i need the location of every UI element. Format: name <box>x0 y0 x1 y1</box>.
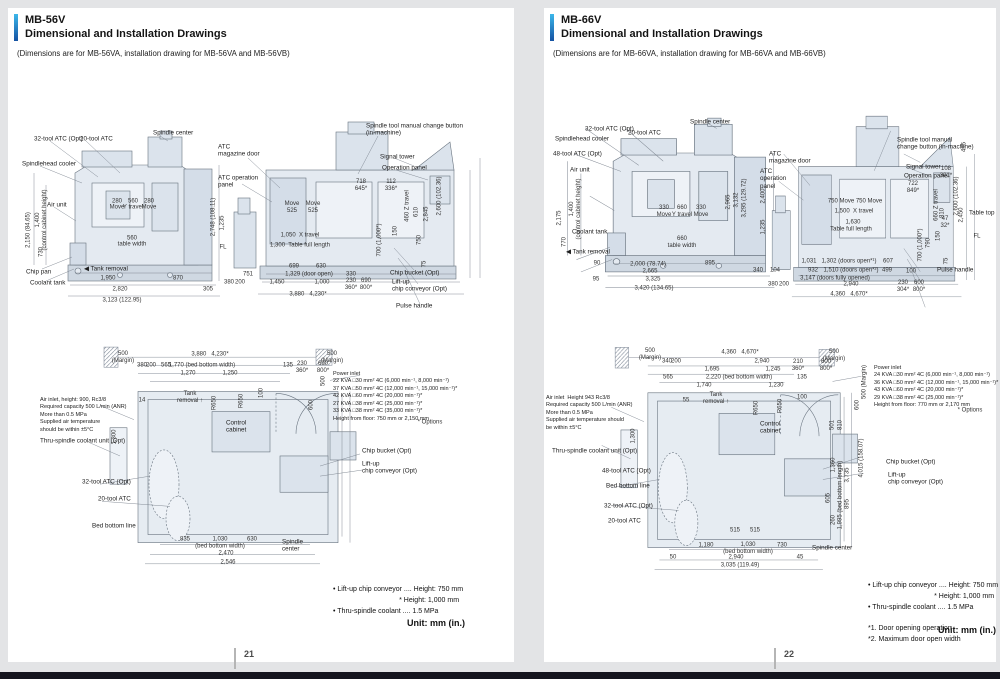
part-label: 48-tool ATC (Opt) <box>602 467 651 474</box>
part-label: Air unit <box>570 166 590 173</box>
dimension-label: 2,220 (bed bottom width) <box>706 374 772 381</box>
dimension-label: 770 <box>561 237 568 247</box>
part-label: 32-tool ATC (Opt) <box>34 135 83 142</box>
dimension-label: 2,470 <box>218 550 233 557</box>
dimension-label: 200 <box>235 279 245 286</box>
footnotes: • Lift-up chip conveyor .... Height: 750… <box>868 581 998 646</box>
dimension-label: 2,965 <box>725 194 732 209</box>
dimension-label: 1,950 <box>100 275 115 282</box>
dimension-label: 600 <box>308 400 315 410</box>
page-title: Dimensional and Installation Drawings <box>25 28 227 42</box>
side-view-drawing: 32-tool ATC (Opt)20-tool ATCSpindle cent… <box>20 125 225 325</box>
dimension-label: 500 (Margin) <box>639 348 661 362</box>
front-view-drawing: ATC magazine doorATC operation panelSpin… <box>759 112 996 322</box>
plan-view-drawing: 500 (Margin)4,360 4,670*3402002,9401,695… <box>544 335 996 593</box>
dimension-label: 500 <box>320 376 327 386</box>
dimension-label: 75 <box>421 261 428 268</box>
dimension-label: 4,360 4,670* <box>721 349 758 356</box>
dimension-label: 460 Z travel <box>404 190 411 222</box>
dimension-label: 750 Move <box>856 198 882 205</box>
dimension-label: 150 <box>392 226 399 236</box>
dimension-label: 230 304* <box>897 280 909 294</box>
dimension-label: 45 <box>797 554 804 561</box>
dimension-label: 495 <box>961 142 968 152</box>
dimension-label: 1,050 X travel <box>281 232 320 239</box>
dimension-label: 2,940 <box>754 358 769 365</box>
dimension-label: 1,329 (door open) <box>285 271 333 278</box>
dimension-label: 47 32* <box>940 216 949 230</box>
dimension-label: R650 <box>238 394 245 408</box>
front-view-drawing: ATC magazine doorATC operation panelSpin… <box>218 118 506 318</box>
part-label: Spindle center <box>282 539 303 554</box>
part-label: Spindlehead cooler <box>22 160 76 167</box>
page-title: Dimensional and Installation Drawings <box>561 28 763 42</box>
dimension-label: 870 <box>173 275 183 282</box>
dimension-label: 1,300 <box>630 428 637 443</box>
side-view-drawing: 32-tool ATC (Opt)20-tool ATCSpindle cent… <box>552 112 780 317</box>
dimension-label: 1,995 (bed bottom length) <box>837 461 844 530</box>
dimension-label: 718 645* <box>355 179 367 193</box>
dimension-label: 1,235 <box>219 215 226 230</box>
dimension-label: 210 360* <box>792 359 804 373</box>
part-label: Spindle center <box>690 118 730 125</box>
part-label: Pulse handle <box>396 302 432 309</box>
dimension-label: 1,510 (doors open*²) <box>823 267 878 274</box>
part-label: Spindlehead cooler <box>555 135 609 142</box>
page-number: 22 <box>774 648 794 669</box>
dimension-label: 305 <box>203 286 213 293</box>
dimension-label: 3,035 (119.49) <box>721 562 760 569</box>
part-label: Chip bucket (Opt) <box>362 447 411 454</box>
dimension-label: 3,325 <box>645 276 660 283</box>
part-label: Bed bottom line <box>92 522 136 529</box>
dimension-label: 1,230 <box>768 382 783 389</box>
part-label: ATC operation panel <box>218 175 258 190</box>
dimension-label: 2,600 (102.36) <box>436 176 443 215</box>
dimension-label: 380 <box>224 279 234 286</box>
dimension-label: FL <box>973 233 980 240</box>
dimension-label: 1,270 <box>180 370 195 377</box>
part-label: Control cabinet <box>760 421 780 436</box>
dimension-label: 4,360 4,670* <box>830 291 867 298</box>
dimension-label: 4,015 (158.07) <box>858 438 865 477</box>
dimension-label: table width <box>118 241 147 248</box>
dimension-label: 14 <box>139 397 146 404</box>
part-label: Thru-spindle coolant unit (Opt) <box>552 447 637 454</box>
subtitle: (Dimensions are for MB-56VA, installatio… <box>17 49 290 58</box>
part-label: Pulse handle <box>937 266 973 273</box>
dimension-label: 610 <box>413 207 420 217</box>
dimension-label: 135 <box>797 374 807 381</box>
dimension-label: 810 <box>837 420 844 430</box>
dimension-label: 515 <box>730 527 740 534</box>
model-name: MB-56V <box>25 14 227 28</box>
dimension-label: FL <box>219 244 226 251</box>
dimension-label: 751 <box>243 271 253 278</box>
dimension-label: Y travel <box>123 204 143 211</box>
part-label: 20-tool ATC <box>98 495 131 502</box>
dimension-label: 630 <box>247 536 257 543</box>
accent-bar <box>550 14 554 41</box>
dimension-label: 135 <box>283 362 293 369</box>
dimension-label: 1,000 <box>314 279 329 286</box>
dimension-label: 515 <box>750 527 760 534</box>
page-mb56v: MB-56V Dimensional and Installation Draw… <box>8 8 514 662</box>
dimension-label: 1,302 (doors open*¹) <box>821 258 876 265</box>
dimension-label: 607 <box>883 258 893 265</box>
dimension-label: 501 <box>829 420 836 430</box>
dimension-label: 3,735 <box>844 467 851 482</box>
dimension-label: 1,300 <box>111 429 118 444</box>
part-label: Spindle center <box>153 129 193 136</box>
dimension-label: 1,740 <box>696 382 711 389</box>
dimension-label: 2,940 <box>728 554 743 561</box>
dimension-label: 1,180 <box>698 542 713 549</box>
dimension-label: 200 <box>779 281 789 288</box>
dimension-label: 75 <box>943 258 950 265</box>
dimension-label: 330 Move <box>657 205 672 219</box>
dimension-label: 2,940 <box>843 281 858 288</box>
part-label: ATC magazine door <box>769 151 811 166</box>
dimension-label: 50 <box>670 554 677 561</box>
part-label: 32-tool ATC (Opt) <box>82 478 131 485</box>
dimension-label: 230 360* <box>345 278 357 292</box>
dimension-label: 605 <box>825 493 832 503</box>
part-label: Coolant tank <box>30 279 65 286</box>
part-label: 20-tool ATC <box>80 135 113 142</box>
dimension-label: * Options <box>958 407 983 414</box>
dimension-label: 500 (Margin) <box>321 351 343 365</box>
dimension-label: 895 <box>844 499 851 509</box>
dimension-label: 2,150 (84.65) <box>25 212 32 248</box>
dimension-label: 330 Move <box>694 205 709 219</box>
dimension-label: 750 Move <box>828 198 854 205</box>
bottom-edge-bar <box>0 672 1000 679</box>
dimension-label: 2,546 <box>220 559 235 566</box>
dimension-label: 1,250 <box>222 370 237 377</box>
page-mb66v: MB-66V Dimensional and Installation Draw… <box>544 8 996 662</box>
dimension-label: 895 <box>705 260 715 267</box>
dimension-label: 1,400 (control cabinet height) <box>569 178 583 239</box>
dimension-label: 200 <box>671 358 681 365</box>
part-label: Operation panel <box>382 164 427 171</box>
dimension-label: 565 <box>663 374 673 381</box>
dimension-label: 660 Y travel <box>672 205 692 219</box>
dimension-label: 3,147 (doors fully opened) <box>800 275 870 282</box>
dimension-label: Tank removal ↑ <box>703 392 729 406</box>
plan-view-drawing: 500 (Margin)3,880 4,230*3802005651,770 (… <box>30 335 500 587</box>
dimension-label: 499 <box>882 267 892 274</box>
dimension-label: 835 <box>180 536 190 543</box>
spec-text-block: Air inlet Height 943 Rc3/8 Required capa… <box>546 395 633 432</box>
dimension-label: 100 <box>797 394 807 401</box>
dimension-label: 1,450 <box>269 279 284 286</box>
part-label: Table top <box>969 209 995 216</box>
accent-bar <box>14 14 18 41</box>
dimension-label: 380 <box>768 281 778 288</box>
page-number: 21 <box>234 648 254 669</box>
dimension-label: 1,031 <box>801 258 816 265</box>
part-label: Bed bottom line <box>606 482 650 489</box>
dimension-label: 1,770 (bed bottom width) <box>169 362 235 369</box>
dimension-label: 3,295 (129.72) <box>741 178 748 217</box>
dimension-label: 700 (1,000*) <box>917 228 924 261</box>
brochure-spread: MB-56V Dimensional and Installation Draw… <box>0 0 1000 679</box>
dimension-label: 700 (1,000*) <box>376 223 383 256</box>
dimension-label: 1,695 <box>704 366 719 373</box>
dimension-label: 630 <box>316 263 326 270</box>
dimension-label: 660 table width <box>668 236 697 250</box>
dimension-label: 2,748 (108.11) <box>210 198 217 237</box>
spec-text-block: Power inlet 22 KVA □30 mm² 4C (6,000 min… <box>333 371 457 423</box>
dimension-label: 3,420 (134.65) <box>634 285 673 292</box>
dimension-label: 95 <box>593 276 600 283</box>
header-text: MB-56V Dimensional and Installation Draw… <box>25 14 227 42</box>
dimension-label: Move 525 <box>285 201 300 215</box>
dimension-label: 90 <box>594 260 601 267</box>
part-label: Signal tower <box>906 163 941 170</box>
part-label: 48-tool ATC (Opt) <box>553 150 602 157</box>
dimension-label: 1,400 (control cabinet height) <box>35 189 49 250</box>
dimension-label: 790 <box>925 238 932 248</box>
part-label: Lift-up chip conveyor (Opt) <box>362 461 417 476</box>
dimension-label: R650 <box>777 399 784 413</box>
dimension-label: 3,123 (122.95) <box>102 297 141 304</box>
dimension-label: 730 <box>38 247 45 257</box>
part-label: 20-tool ATC <box>608 517 641 524</box>
dimension-label: 1,235 <box>760 219 767 234</box>
dimension-label: 108 301* <box>940 166 952 180</box>
dimension-label: 104 <box>770 267 780 274</box>
part-label: 32-tool ATC (Opt) <box>604 502 653 509</box>
part-label: Air unit <box>47 201 67 208</box>
part-label: ◀ Tank removal <box>84 265 128 272</box>
dimension-label: 2,450 <box>958 207 965 222</box>
part-label: Signal tower <box>380 153 415 160</box>
dimension-label: 150 <box>935 231 942 241</box>
dimension-label: 3,880 4,230* <box>289 291 326 298</box>
dimension-label: * Options <box>418 419 443 426</box>
dimension-label: 1,500 X travel <box>835 208 874 215</box>
dimension-label: 3,132 <box>733 192 740 207</box>
side-view-svg <box>20 125 225 325</box>
dimension-label: 55 <box>683 397 690 404</box>
part-label: Lift-up chip conveyor (Opt) <box>888 472 943 487</box>
part-label: Spindle center <box>812 544 852 551</box>
part-label: 20-tool ATC <box>628 129 661 136</box>
dimension-label: 1,245 <box>765 366 780 373</box>
subtitle: (Dimensions are for MB-66VA, installatio… <box>553 49 826 58</box>
dimension-label: 1,300 Table full length <box>270 242 330 249</box>
dimension-label: 2,820 <box>112 286 127 293</box>
part-label: Control cabinet <box>226 420 246 435</box>
unit-note: Unit: mm (in.) <box>938 625 996 635</box>
dimension-label: 260 <box>830 515 837 525</box>
header: MB-66V Dimensional and Installation Draw… <box>550 14 763 42</box>
dimension-label: 3,880 4,230* <box>191 351 228 358</box>
part-label: Chip pan <box>26 268 51 275</box>
dimension-label: 230 360* <box>296 361 308 375</box>
dimension-label: R650 <box>211 396 218 410</box>
dimension-label: 100 <box>906 268 916 275</box>
dimension-label: Move <box>142 204 157 211</box>
dimension-label: 932 <box>808 267 818 274</box>
model-name: MB-66V <box>561 14 763 28</box>
part-label: Spindle tool manual change button (in-ma… <box>366 123 463 138</box>
dimension-label: R650 <box>753 401 760 415</box>
part-label: 32-tool ATC (Opt) <box>585 125 634 132</box>
part-label: ATC magazine door <box>218 144 260 159</box>
dimension-label: 2,665 <box>642 268 657 275</box>
part-label: Chip bucket (Opt) <box>390 269 439 276</box>
dimension-label: 2,175 <box>556 210 563 225</box>
part-label: ATC operation panel <box>760 168 786 190</box>
dimension-label: 100 <box>258 388 265 398</box>
dimension-label: 2,845 <box>423 206 430 221</box>
dimension-label: Move 525 <box>306 201 321 215</box>
dimension-label: 722 849* <box>907 181 919 195</box>
footnotes: • Lift-up chip conveyor .... Height: 750… <box>333 585 463 618</box>
header-text: MB-66V Dimensional and Installation Draw… <box>561 14 763 42</box>
dimension-label: 600 800* <box>913 280 925 294</box>
dimension-label: 730 <box>777 542 787 549</box>
dimension-label: 112 336* <box>385 179 397 193</box>
unit-note: Unit: mm (in.) <box>407 618 465 628</box>
dimension-label: 500 (Margin) <box>823 349 845 363</box>
part-label: Lift-up chip conveyor (Opt) <box>392 279 447 294</box>
dimension-label: 690 800* <box>360 278 372 292</box>
dimension-label: 500 (Margin) <box>112 351 134 365</box>
dimension-label: Table full length <box>830 226 872 233</box>
spec-text-block: Power inlet 24 KVA □30 mm² 4C (6,000 min… <box>874 365 998 410</box>
dimension-label: 500 (Margin) <box>861 365 868 399</box>
part-label: Chip bucket (Opt) <box>886 458 935 465</box>
dimension-label: Tank removal ↑ <box>177 391 203 405</box>
dimension-label: 750 <box>416 235 423 245</box>
header: MB-56V Dimensional and Installation Draw… <box>14 14 227 42</box>
dimension-label: 699 <box>289 263 299 270</box>
part-label: ◀ Tank removal <box>566 248 610 255</box>
dimension-label: 600 <box>854 400 861 410</box>
dimension-label: 200 <box>146 362 156 369</box>
